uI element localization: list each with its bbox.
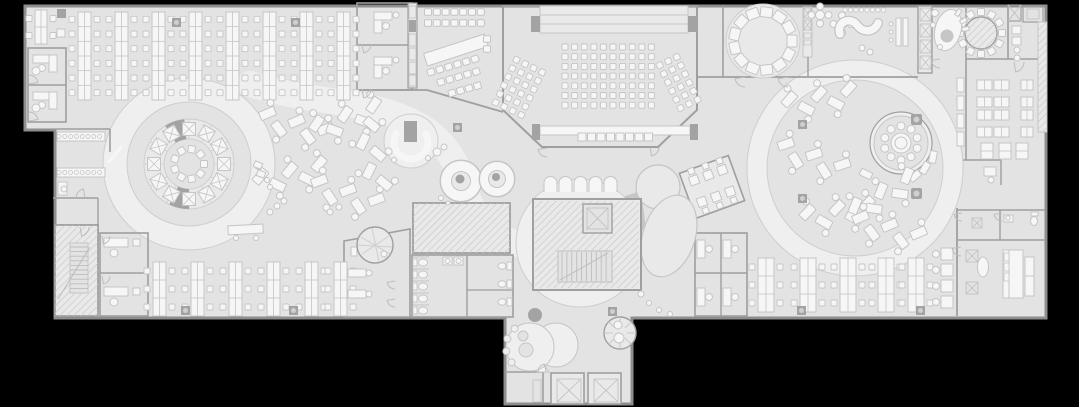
desk-chair <box>242 31 248 37</box>
plan-furniture <box>393 57 399 63</box>
booth-table <box>492 173 500 181</box>
desk-chair <box>859 264 865 270</box>
boardroom-chair <box>425 20 432 27</box>
plan-structure <box>413 203 510 253</box>
auditorium-seat <box>600 63 606 69</box>
desk-chair <box>254 60 260 66</box>
auditorium-seat <box>610 63 616 69</box>
desk-chair <box>279 90 285 96</box>
toilet <box>419 283 428 290</box>
flower-chair <box>817 3 824 10</box>
auditorium-seat <box>620 44 626 50</box>
hub-meeting-circle <box>144 119 234 209</box>
pod-column-cap <box>914 191 920 197</box>
boardroom-chair <box>453 60 462 68</box>
pod-chair <box>897 122 905 130</box>
auditorium-seat <box>610 102 616 108</box>
table-chair <box>978 51 985 58</box>
desk-chair <box>296 286 302 292</box>
phone-booth <box>604 177 617 193</box>
plan-furniture <box>133 288 140 295</box>
desk-chair <box>869 264 875 270</box>
desk-chair <box>933 283 940 290</box>
desk-chair <box>106 60 112 66</box>
auditorium-seat <box>629 93 635 99</box>
desk-chair <box>69 16 75 22</box>
desk-chair <box>220 268 226 274</box>
workstation-bench <box>791 258 825 312</box>
desk-chair <box>279 31 285 37</box>
plan-furniture <box>133 239 140 246</box>
desk-chair <box>180 60 186 66</box>
auditorium-seat <box>639 102 645 108</box>
plan-furniture <box>723 240 731 258</box>
boardroom-chair <box>460 20 467 27</box>
desk-chair <box>106 16 112 22</box>
desk-chair <box>217 90 223 96</box>
phone-booth <box>574 177 587 193</box>
plan-furniture <box>446 201 450 205</box>
plan-structure <box>690 124 698 140</box>
toilet <box>419 259 428 266</box>
plan-furniture <box>281 198 287 204</box>
plan-furniture <box>104 238 128 247</box>
desk-chair <box>291 60 297 66</box>
desk-chair <box>933 299 940 306</box>
boardroom-chair <box>465 84 474 92</box>
plan-furniture <box>962 26 970 31</box>
desk-chair <box>258 304 264 310</box>
plan-furniture <box>374 65 382 78</box>
auditorium-seat <box>562 93 568 99</box>
plan-furniture <box>234 236 239 241</box>
plan-furniture <box>903 18 908 46</box>
desk-chair <box>749 282 755 288</box>
column-cap <box>291 308 296 313</box>
desk-chair <box>291 31 297 37</box>
auditorium-seat <box>581 44 587 50</box>
desk-chair <box>353 46 359 52</box>
boardroom-chair <box>462 57 471 65</box>
desk-chair <box>279 46 285 52</box>
auditorium-seat <box>600 73 606 79</box>
desk-chair <box>205 60 211 66</box>
auditorium-seat <box>620 54 626 60</box>
pod-chair <box>913 144 921 152</box>
booth-sofa <box>440 160 482 202</box>
dot <box>80 171 84 175</box>
desk-chair <box>217 31 223 37</box>
desk-chair <box>279 60 285 66</box>
auditorium-seat <box>591 44 597 50</box>
boardroom-chair <box>448 89 457 97</box>
desk-chair <box>217 75 223 81</box>
plan-furniture <box>519 343 533 357</box>
dot <box>870 8 874 12</box>
desk-chair <box>927 300 933 306</box>
conference-chair <box>787 35 797 47</box>
desk-chair <box>143 75 149 81</box>
desk-chair <box>180 90 186 96</box>
plan-furniture <box>61 186 67 192</box>
column <box>181 306 190 315</box>
desk-chair <box>217 46 223 52</box>
desk-chair <box>26 33 32 39</box>
auditorium-seat <box>562 83 568 89</box>
plan-furniture <box>32 67 40 75</box>
auditorium-seat <box>591 83 597 89</box>
plan-structure <box>540 15 688 24</box>
auditorium-seat <box>639 73 645 79</box>
plan-furniture <box>511 325 518 332</box>
conference-chair <box>729 41 742 55</box>
auditorium-seat <box>600 93 606 99</box>
desk-chair <box>325 286 331 292</box>
desk-chair <box>180 46 186 52</box>
toilet-tank <box>413 271 417 278</box>
workstation-bench <box>899 258 933 312</box>
desk-chair <box>325 268 331 274</box>
desk-chair <box>831 282 837 288</box>
auditorium-seat <box>581 63 587 69</box>
hub-x-table <box>218 158 231 171</box>
auditorium-seat <box>620 93 626 99</box>
auditorium-seat <box>572 54 578 60</box>
boardroom-chair <box>471 55 480 63</box>
dot <box>63 135 67 139</box>
pod-chair <box>887 125 895 133</box>
auditorium-seat <box>591 63 597 69</box>
conference-chair <box>760 7 773 18</box>
plan-furniture <box>498 263 506 269</box>
desk-chair <box>131 16 137 22</box>
cluster-chair <box>832 193 840 201</box>
single-desk <box>941 248 953 260</box>
pod-chair <box>887 153 895 161</box>
pod-chair <box>881 134 889 142</box>
desk-chair <box>94 75 100 81</box>
desk-chair <box>791 264 797 270</box>
column-cap <box>800 122 805 127</box>
plan-furniture <box>1031 212 1038 216</box>
desk-chair <box>283 304 289 310</box>
boardroom-chair <box>469 20 476 27</box>
auditorium-seat <box>591 102 597 108</box>
desk-chair <box>106 90 112 96</box>
auditorium-seat <box>562 63 568 69</box>
desk-chair <box>899 282 905 288</box>
plan-furniture <box>889 38 893 42</box>
desk-chair <box>245 268 251 274</box>
plan-furniture <box>1012 26 1021 34</box>
auditorium-seat <box>629 102 635 108</box>
boardroom-chair <box>445 75 454 83</box>
plan-furniture <box>110 298 118 306</box>
desk-chair <box>182 286 188 292</box>
desk-chair <box>169 286 175 292</box>
plan-furniture <box>393 12 399 18</box>
desk-chair <box>217 60 223 66</box>
desk-chair <box>50 33 56 39</box>
hub-chair <box>188 175 196 183</box>
dot <box>98 171 102 175</box>
column <box>289 306 298 315</box>
dot <box>92 135 96 139</box>
desk-chair <box>316 60 322 66</box>
workstation-bench <box>144 262 175 316</box>
plan-furniture <box>1031 217 1038 226</box>
dot <box>74 171 78 175</box>
desk-chair <box>144 286 150 292</box>
auditorium-seat <box>581 102 587 108</box>
phone-booth <box>544 177 557 193</box>
plan-furniture <box>638 291 644 297</box>
plan-furniture <box>503 348 510 355</box>
auditorium-seat <box>562 54 568 60</box>
plan-structure <box>1038 22 1047 132</box>
desk-chair <box>258 286 264 292</box>
desk-chair <box>254 31 260 37</box>
dot <box>86 135 90 139</box>
plan-furniture <box>889 22 893 26</box>
desk-chair <box>316 16 322 22</box>
auditorium-seat <box>620 102 626 108</box>
plan-structure <box>688 16 697 32</box>
desk-chair <box>927 282 933 288</box>
auditorium-seat <box>591 54 597 60</box>
column <box>453 123 462 132</box>
desk-chair <box>143 60 149 66</box>
auditorium-seat <box>620 73 626 79</box>
plan-furniture <box>265 178 270 183</box>
desk-chair <box>353 60 359 66</box>
desk-chair <box>933 251 940 258</box>
auditorium-seat <box>581 73 587 79</box>
dot <box>98 135 102 139</box>
desk-chair <box>217 16 223 22</box>
plan-furniture <box>381 251 387 257</box>
plan-furniture <box>1004 263 1009 271</box>
desk-chair <box>94 60 100 66</box>
dot <box>881 8 885 12</box>
plan-structure <box>532 124 540 140</box>
plan-furniture <box>931 23 936 28</box>
boardroom-chair <box>454 73 463 81</box>
phone-booth <box>589 177 602 193</box>
workstation-bench <box>749 258 783 312</box>
plan-furniture <box>383 23 390 30</box>
plan-furniture <box>327 209 333 215</box>
cluster-desk <box>865 203 882 214</box>
plan-furniture <box>274 203 280 209</box>
plan-furniture <box>409 20 416 32</box>
column <box>797 306 806 315</box>
plan-furniture <box>507 298 512 306</box>
hub-chair <box>201 161 208 168</box>
hub-x-table <box>183 123 196 136</box>
boardroom-chair <box>451 20 458 27</box>
desk-chair <box>168 31 174 37</box>
desk-chair <box>353 75 359 81</box>
plan-furniture <box>716 157 724 165</box>
desk-chair <box>207 268 213 274</box>
cluster-chair <box>851 225 859 233</box>
plan-furniture <box>348 269 366 277</box>
plan-furniture <box>336 204 342 210</box>
auditorium-seat <box>572 83 578 89</box>
desk-chair <box>296 268 302 274</box>
auditorium-seat <box>639 93 645 99</box>
boardroom-chair <box>477 20 484 27</box>
desk-chair <box>182 268 188 274</box>
auditorium-seat <box>600 54 606 60</box>
pod-chair <box>907 125 915 133</box>
auditorium-seat <box>639 63 645 69</box>
column <box>798 194 807 203</box>
plan-furniture <box>351 247 357 256</box>
auditorium-seat <box>648 83 654 89</box>
dot <box>80 135 84 139</box>
desk-chair <box>254 90 260 96</box>
desk-chair <box>819 300 825 306</box>
workstation-bench <box>220 262 251 316</box>
plan-structure <box>540 24 688 33</box>
banquette <box>957 132 964 146</box>
column <box>172 18 181 27</box>
auditorium-seat <box>572 102 578 108</box>
plan-furniture <box>859 45 865 51</box>
desk-chair <box>94 31 100 37</box>
plan-furniture <box>498 299 506 305</box>
desk-chair <box>316 75 322 81</box>
plan-furniture <box>645 133 653 141</box>
plan-furniture <box>57 29 65 37</box>
plan-furniture <box>110 249 118 257</box>
desk-chair <box>143 90 149 96</box>
boardroom-chair <box>425 9 432 16</box>
plan-furniture <box>1004 273 1009 281</box>
desk-chair <box>353 90 359 96</box>
boardroom-chair <box>442 9 449 16</box>
plan-furniture <box>504 335 511 342</box>
plan-furniture <box>657 308 662 313</box>
toilet <box>419 295 428 302</box>
plan-furniture <box>668 312 673 317</box>
toilet <box>419 307 428 314</box>
desk-chair <box>279 16 285 22</box>
plan-furniture <box>706 246 713 253</box>
desk-chair <box>242 60 248 66</box>
flower-chair <box>817 20 824 27</box>
toilet-tank <box>413 283 417 290</box>
auditorium-seat <box>562 73 568 79</box>
pod-chair <box>907 153 915 161</box>
column <box>798 120 807 129</box>
desk-chair <box>749 300 755 306</box>
floor-plan-drawing <box>25 3 1047 404</box>
dot <box>69 171 73 175</box>
desk-chair <box>328 75 334 81</box>
column <box>916 306 925 315</box>
boardroom-chair <box>427 68 436 76</box>
dot <box>859 8 863 12</box>
desk-chair <box>131 31 137 37</box>
desk-chair <box>106 75 112 81</box>
desk-chair <box>169 268 175 274</box>
plan-furniture <box>392 158 397 163</box>
auditorium-seat <box>581 83 587 89</box>
flower-center <box>816 11 825 20</box>
boardroom-chair <box>433 20 440 27</box>
plan-furniture <box>374 20 382 33</box>
pod-fan-desk <box>929 150 938 163</box>
desk-chair <box>927 264 933 270</box>
boardroom-chair <box>460 9 467 16</box>
plan-structure <box>540 6 688 15</box>
plan-furniture <box>104 287 128 296</box>
auditorium-seat <box>648 63 654 69</box>
plan-furniture <box>578 133 586 141</box>
desk-chair <box>254 46 260 52</box>
plan-furniture <box>716 202 724 210</box>
desk-chair <box>859 282 865 288</box>
dot <box>854 8 858 12</box>
column <box>291 18 300 27</box>
plan-furniture <box>32 104 40 112</box>
auditorium-seat <box>562 102 568 108</box>
plan-furniture <box>697 288 705 306</box>
desk-chair <box>205 75 211 81</box>
desk-chair <box>325 304 331 310</box>
column-cap <box>799 308 804 313</box>
phone-booth <box>559 177 572 193</box>
desk-chair <box>50 16 56 22</box>
plan-structure <box>404 121 417 142</box>
auditorium-seat <box>591 93 597 99</box>
boardroom-chair <box>472 67 481 75</box>
desk-chair <box>168 75 174 81</box>
desk-chair <box>819 282 825 288</box>
desk-chair <box>245 304 251 310</box>
plan-furniture <box>441 144 447 150</box>
plan-furniture <box>941 30 953 42</box>
desk-chair <box>831 264 837 270</box>
workstation-bench <box>831 258 865 312</box>
plan-furniture <box>697 240 705 258</box>
desk-chair <box>791 282 797 288</box>
auditorium-seat <box>620 63 626 69</box>
desk-chair <box>316 31 322 37</box>
plan-furniture <box>1004 253 1009 261</box>
auditorium-seat <box>648 54 654 60</box>
desk-chair <box>94 90 100 96</box>
boardroom-chair <box>456 86 465 94</box>
conference-chair-circle <box>726 4 800 78</box>
plan-furniture <box>267 209 273 215</box>
boardroom-chair <box>473 82 482 90</box>
workstation-bench <box>296 262 327 316</box>
dot <box>848 8 852 12</box>
desk-chair <box>245 286 251 292</box>
column-cap <box>918 308 923 313</box>
conference-chair <box>760 64 773 75</box>
auditorium-seat <box>648 44 654 50</box>
plan-furniture <box>896 18 901 46</box>
column <box>608 307 617 316</box>
desk-chair <box>168 46 174 52</box>
desk-chair <box>254 75 260 81</box>
auditorium-seat <box>648 102 654 108</box>
